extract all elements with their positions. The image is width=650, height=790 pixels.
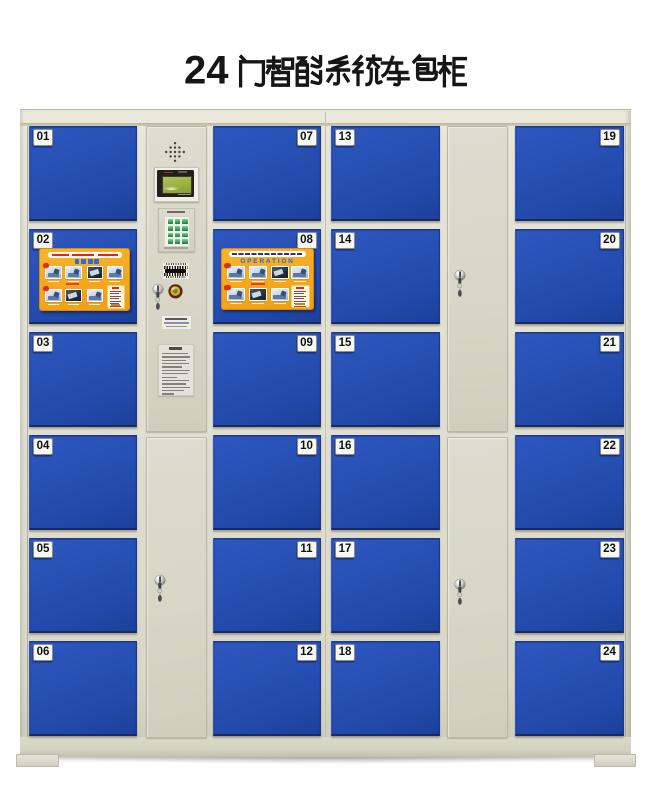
svg-text:24: 24 bbox=[184, 49, 229, 93]
